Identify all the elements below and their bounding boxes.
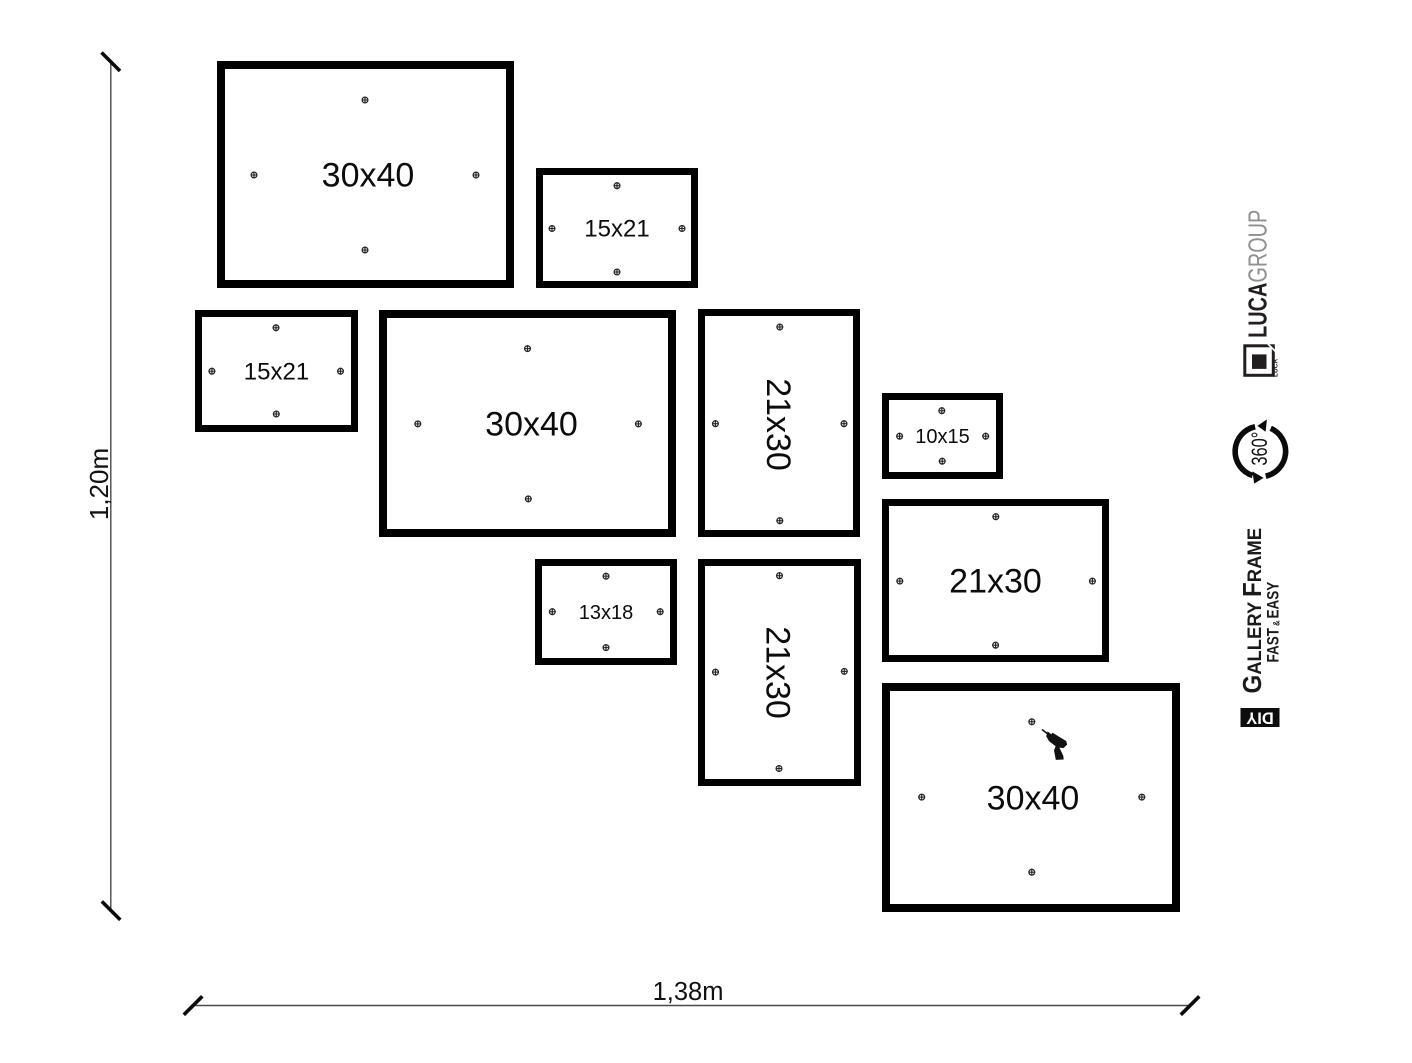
svg-text:15x21: 15x21 xyxy=(244,359,309,386)
svg-text:30x40: 30x40 xyxy=(987,780,1080,818)
svg-text:1,20m: 1,20m xyxy=(84,448,114,520)
svg-text:DIY: DIY xyxy=(1246,709,1274,727)
svg-text:21x30: 21x30 xyxy=(949,563,1042,601)
svg-text:LUCAGROUP: LUCAGROUP xyxy=(1243,210,1272,338)
svg-text:21x30: 21x30 xyxy=(759,626,797,719)
svg-text:360°: 360° xyxy=(1247,432,1272,466)
svg-text:15x21: 15x21 xyxy=(584,216,649,243)
svg-text:10x15: 10x15 xyxy=(915,426,970,448)
svg-text:GALLERY FRAME: GALLERY FRAME xyxy=(1239,528,1267,694)
svg-text:LUCA: LUCA xyxy=(1273,359,1280,377)
svg-text:21x30: 21x30 xyxy=(759,378,797,471)
svg-text:30x40: 30x40 xyxy=(322,157,415,195)
svg-text:13x18: 13x18 xyxy=(579,602,634,624)
svg-text:30x40: 30x40 xyxy=(485,406,578,444)
svg-text:1,38m: 1,38m xyxy=(653,978,724,1006)
